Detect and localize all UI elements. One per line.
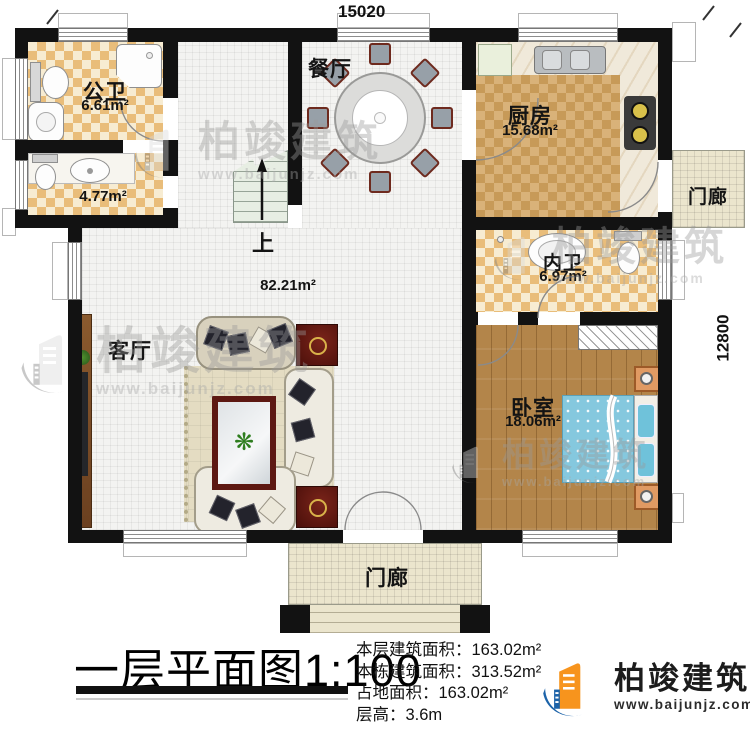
wall bbox=[658, 300, 672, 543]
wall bbox=[15, 215, 178, 228]
toilet-bowl bbox=[617, 242, 640, 274]
wall bbox=[163, 140, 178, 176]
floor-plan-page: ❋ 15020 12800 公卫 6.61m² 4.77m² 餐厅 厨房 15.… bbox=[0, 0, 750, 729]
lamp-icon bbox=[640, 490, 653, 503]
stat-line: 占地面积：163.02m² bbox=[356, 683, 541, 705]
stat-label: 占地面积： bbox=[356, 684, 439, 702]
table-medallion bbox=[309, 337, 327, 355]
end-table bbox=[296, 324, 338, 366]
stat-value: 163.02m² bbox=[472, 641, 542, 659]
window-sill bbox=[672, 493, 684, 523]
wall bbox=[15, 140, 123, 153]
sink-basin bbox=[36, 112, 56, 132]
wall bbox=[247, 530, 343, 543]
window bbox=[522, 530, 618, 543]
stat-line: 本栋建筑面积：313.52m² bbox=[356, 662, 541, 684]
wall bbox=[423, 530, 522, 543]
bed-pillow bbox=[637, 404, 655, 438]
room-area-wash: 4.77m² bbox=[58, 188, 148, 205]
wardrobe bbox=[578, 325, 658, 350]
window bbox=[658, 240, 672, 300]
stat-line: 层高：3.6m bbox=[356, 705, 541, 727]
dining-chair bbox=[431, 107, 453, 129]
stat-label: 本栋建筑面积： bbox=[356, 663, 472, 681]
room-label-dining: 餐厅 bbox=[300, 53, 360, 83]
window-sill bbox=[58, 13, 128, 28]
company-logo: 柏竣建筑 www.baijunjz.com bbox=[540, 652, 750, 722]
window bbox=[15, 160, 28, 210]
room-area-inner-bath: 6.97m² bbox=[524, 268, 602, 285]
wall bbox=[462, 28, 476, 90]
wall bbox=[163, 28, 178, 98]
window bbox=[337, 28, 430, 42]
wall bbox=[128, 28, 337, 42]
stat-value: 163.02m² bbox=[439, 684, 509, 702]
window bbox=[123, 530, 247, 543]
window-sill bbox=[518, 13, 618, 28]
toilet bbox=[30, 62, 41, 102]
sink-drain bbox=[87, 168, 93, 174]
dining-chair bbox=[369, 171, 391, 193]
bed-pillow bbox=[637, 443, 655, 477]
stat-value: 3.6m bbox=[406, 706, 443, 724]
table-center bbox=[374, 112, 386, 124]
window-sill bbox=[672, 240, 685, 300]
window-sill bbox=[2, 208, 16, 236]
lamp-icon bbox=[640, 372, 653, 385]
dining-chair bbox=[307, 107, 329, 129]
window bbox=[68, 242, 82, 300]
room-label-living: 客厅 bbox=[100, 335, 160, 365]
sink-basin bbox=[542, 50, 562, 70]
wall bbox=[68, 300, 82, 543]
kitchen-floor bbox=[476, 75, 620, 217]
nightstand bbox=[634, 366, 660, 392]
burner bbox=[631, 102, 649, 120]
wall bbox=[68, 530, 123, 543]
company-name: 柏竣建筑 bbox=[614, 663, 750, 694]
stairs-up-label: 上 bbox=[246, 226, 280, 258]
sink-basin bbox=[570, 50, 590, 70]
window bbox=[518, 28, 618, 42]
room-label-porch-bottom: 门廊 bbox=[352, 562, 422, 592]
coffee-table: ❋ bbox=[212, 396, 276, 490]
porch-steps bbox=[288, 605, 482, 633]
bed-duvet bbox=[562, 395, 634, 483]
stat-value: 313.52m² bbox=[472, 663, 542, 681]
dimension-top: 15020 bbox=[338, 2, 385, 22]
stat-label: 本层建筑面积： bbox=[356, 641, 472, 659]
dining-chair bbox=[369, 43, 391, 65]
end-table bbox=[296, 486, 338, 528]
window-sill bbox=[123, 543, 247, 557]
sofa-pillow bbox=[226, 332, 250, 356]
stat-label: 层高： bbox=[356, 706, 406, 724]
wall bbox=[658, 28, 672, 160]
room-area-bedroom: 18.06m² bbox=[492, 413, 574, 430]
wall bbox=[15, 28, 58, 42]
shower-drain bbox=[146, 52, 153, 59]
room-area-kitchen: 15.68m² bbox=[486, 122, 574, 139]
hall-area-label: 82.21m² bbox=[248, 277, 328, 294]
wall bbox=[462, 217, 672, 230]
window bbox=[15, 58, 28, 140]
toilet-tank bbox=[614, 231, 642, 241]
company-logo-icon bbox=[540, 652, 604, 722]
towel-hook bbox=[497, 236, 504, 243]
table-plant-icon: ❋ bbox=[234, 431, 254, 455]
title-underline bbox=[76, 686, 348, 694]
room-label-porch-right: 门廊 bbox=[672, 182, 744, 209]
wall bbox=[462, 160, 476, 530]
window-sill bbox=[52, 242, 68, 300]
title-underline-light bbox=[76, 698, 348, 700]
window bbox=[58, 28, 128, 42]
window-sill bbox=[2, 58, 16, 140]
nightstand bbox=[634, 484, 660, 510]
area-stats: 本层建筑面积：163.02m² 本栋建筑面积：313.52m² 占地面积：163… bbox=[356, 640, 541, 726]
room-area-public-bath: 6.61m² bbox=[60, 97, 150, 114]
wall bbox=[658, 212, 672, 240]
burner bbox=[631, 126, 649, 144]
porch-pillar bbox=[280, 605, 310, 633]
wall bbox=[462, 312, 478, 325]
fridge bbox=[478, 44, 512, 76]
dimension-right: 12800 bbox=[714, 314, 734, 361]
wall bbox=[68, 228, 82, 242]
company-url: www.baijunjz.com bbox=[614, 697, 750, 712]
table-medallion bbox=[309, 499, 327, 517]
window-sill bbox=[672, 22, 696, 62]
toilet-tank bbox=[32, 154, 58, 163]
wall bbox=[518, 312, 538, 325]
window-sill bbox=[522, 543, 618, 557]
porch-pillar bbox=[460, 605, 490, 633]
toilet-bowl bbox=[35, 164, 56, 190]
stat-line: 本层建筑面积：163.02m² bbox=[356, 640, 541, 662]
